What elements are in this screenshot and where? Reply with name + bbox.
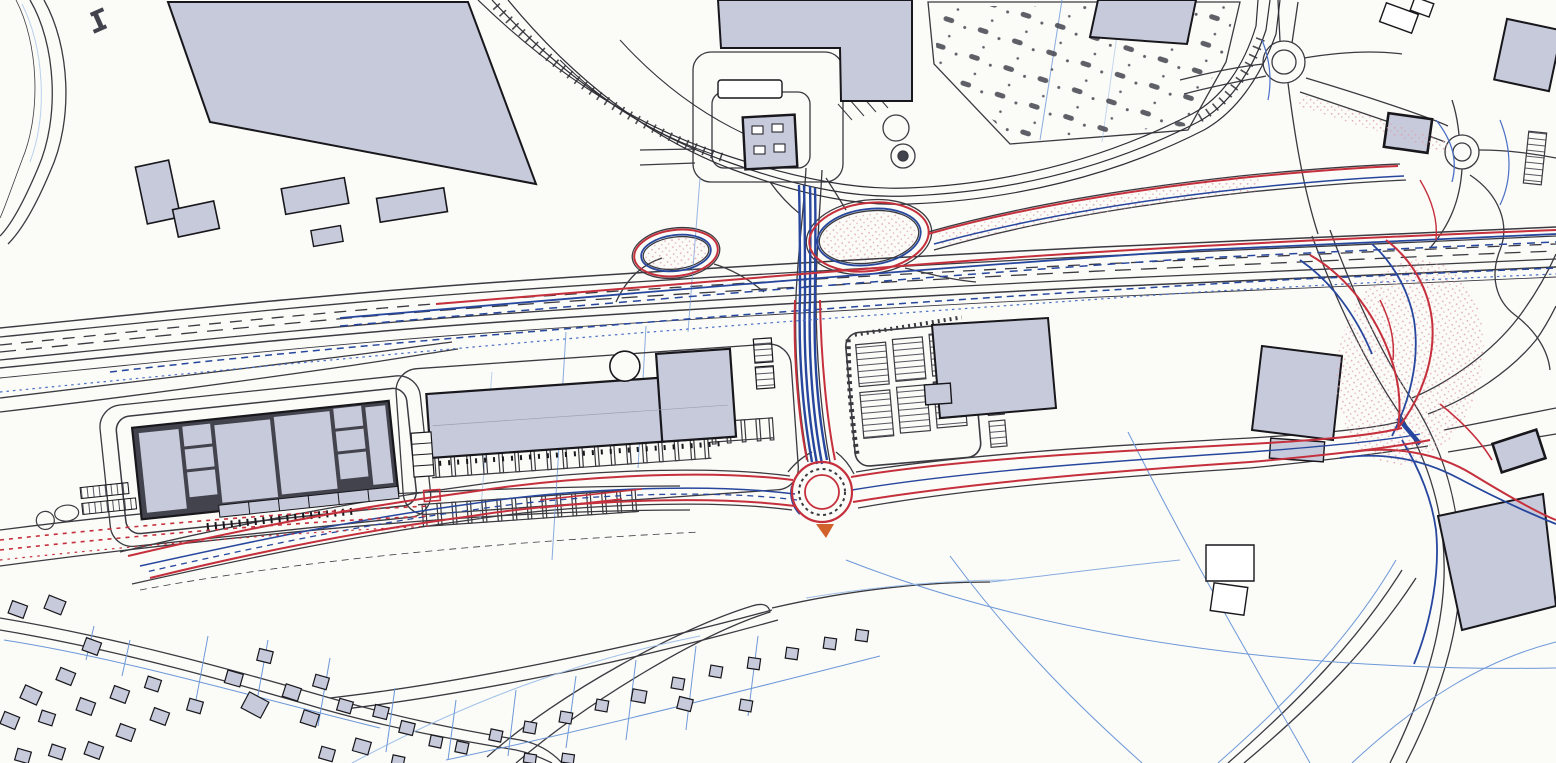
link-road-blue [799,185,827,464]
gas-pump-area [718,80,797,169]
bldg-se-dark [1492,430,1545,473]
site-plan-drawing [0,0,1556,763]
bldg-se-white-1 [1206,545,1254,581]
bldg-nw-4 [311,226,343,247]
housing-layer [0,595,869,763]
residential-streets [0,532,990,763]
scanned-plan-sheet [0,0,1556,763]
bldg-ne-corner [1494,19,1556,91]
bldg-ne-inlot [1090,0,1196,44]
bldg-se-large [1438,494,1556,630]
bldg-nw-2 [173,201,220,237]
road-se-curve [1228,570,1402,763]
mast-symbol [90,7,107,33]
bldg-east-1 [1252,346,1342,440]
bldg-nw-large [168,2,536,184]
right-edge-parking-strip [1523,131,1546,185]
bldg-nw-5 [377,188,448,222]
bldg-nw-3 [281,178,349,215]
road-nw-corner [0,0,52,236]
bldg-se-white-2 [1210,583,1248,615]
bldg-centre-east-annex [924,383,951,405]
